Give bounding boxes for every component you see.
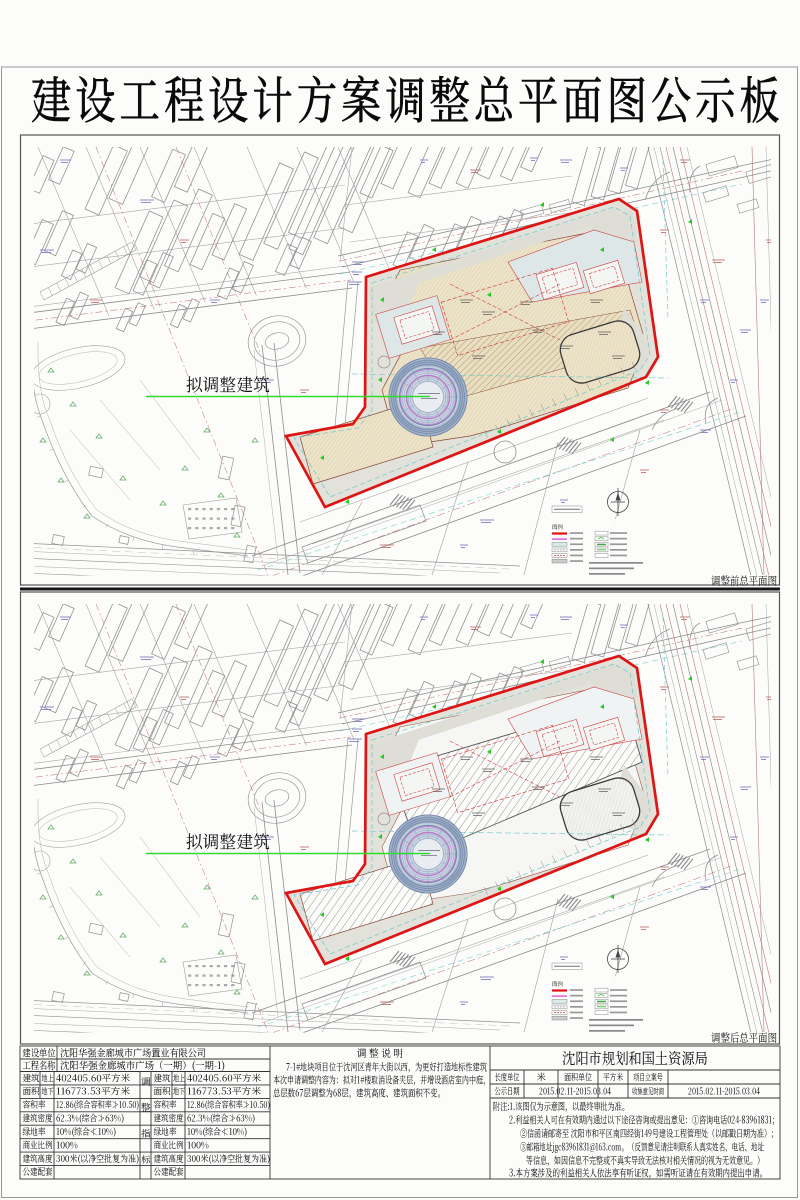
svg-text:地下: 地下 xyxy=(173,1084,185,1097)
svg-text:300米(以净空批复为准): 300米(以净空批复为准) xyxy=(56,1151,139,1165)
svg-text:调整前总平面图: 调整前总平面图 xyxy=(711,573,777,589)
svg-text:整: 整 xyxy=(141,1100,151,1114)
svg-text:2015.02.11-2015.03.04: 2015.02.11-2015.03.04 xyxy=(688,1084,761,1098)
svg-text:调整后总平面图: 调整后总平面图 xyxy=(711,1030,777,1046)
svg-text:10%(综合≮10%): 10%(综合≮10%) xyxy=(56,1124,116,1138)
svg-text:拟调整建筑: 拟调整建筑 xyxy=(186,372,270,397)
svg-text:容积率: 容积率 xyxy=(154,1097,177,1111)
svg-text:116773.53平方米: 116773.53平方米 xyxy=(187,1083,262,1097)
svg-text:62.3%(综合≯63%): 62.3%(综合≯63%) xyxy=(187,1111,255,1125)
svg-text:沈阳市规划和国土资源局: 沈阳市规划和国土资源局 xyxy=(562,1047,708,1069)
svg-text:402405.60平方米: 402405.60平方米 xyxy=(187,1071,262,1085)
svg-text:12.86(综合容积率≯10.50): 12.86(综合容积率≯10.50) xyxy=(187,1097,270,1111)
svg-text:建筑密度: 建筑密度 xyxy=(23,1111,54,1125)
svg-text:地上: 地上 xyxy=(42,1072,54,1085)
svg-text:100%: 100% xyxy=(56,1137,78,1151)
svg-text:10%(综合≮10%): 10%(综合≮10%) xyxy=(187,1124,247,1138)
svg-text:300米(以净空批复为准): 300米(以净空批复为准) xyxy=(187,1151,270,1165)
svg-text:长度单位: 长度单位 xyxy=(495,1070,520,1084)
svg-text:建筑高度: 建筑高度 xyxy=(154,1151,185,1165)
svg-text:建筑: 建筑 xyxy=(23,1071,41,1085)
svg-text:标: 标 xyxy=(141,1152,151,1166)
svg-text:建筑高度: 建筑高度 xyxy=(23,1151,54,1165)
svg-text:商业比例: 商业比例 xyxy=(23,1137,54,1151)
svg-text:拟调整建筑: 拟调整建筑 xyxy=(186,829,270,854)
svg-text:容积率: 容积率 xyxy=(23,1097,46,1111)
svg-text:地下: 地下 xyxy=(42,1084,54,1097)
svg-text:建设工程设计方案调整总平面图公示板: 建设工程设计方案调整总平面图公示板 xyxy=(31,61,780,134)
svg-text:米: 米 xyxy=(536,1070,546,1084)
svg-text:402405.60平方米: 402405.60平方米 xyxy=(56,1071,131,1085)
svg-text:12.86(综合容积率≯10.50): 12.86(综合容积率≯10.50) xyxy=(56,1097,139,1111)
svg-text:平方米: 平方米 xyxy=(603,1070,623,1084)
svg-text:绿地率: 绿地率 xyxy=(23,1124,46,1138)
svg-text:面积: 面积 xyxy=(154,1083,172,1097)
svg-text:3.本方案涉及的利益相关人依法享有听证权，如需听证请在有效期: 3.本方案涉及的利益相关人依法享有听证权，如需听证请在有效期内提出申请。 xyxy=(509,1165,767,1180)
svg-text:建筑: 建筑 xyxy=(154,1071,172,1085)
svg-text:指: 指 xyxy=(141,1126,151,1140)
svg-text:图例: 图例 xyxy=(552,523,564,531)
svg-text:面积: 面积 xyxy=(23,1083,41,1097)
svg-text:收集意见时间: 收集意见时间 xyxy=(632,1086,664,1098)
svg-text:地上: 地上 xyxy=(173,1072,185,1085)
svg-text:公示日期: 公示日期 xyxy=(495,1084,520,1098)
svg-text:绿地率: 绿地率 xyxy=(154,1124,177,1138)
svg-text:商业比例: 商业比例 xyxy=(154,1137,185,1151)
svg-text:面积单位: 面积单位 xyxy=(564,1070,592,1084)
svg-text:建筑密度: 建筑密度 xyxy=(154,1111,185,1125)
svg-text:100%: 100% xyxy=(187,1137,209,1151)
svg-text:总层数67层调整为68层，建筑高度、建筑面积不变。: 总层数67层调整为68层，建筑高度、建筑面积不变。 xyxy=(273,1085,445,1100)
svg-text:公建配套: 公建配套 xyxy=(23,1164,54,1178)
svg-text:调: 调 xyxy=(141,1074,151,1088)
svg-text:62.3%(综合≯63%): 62.3%(综合≯63%) xyxy=(56,1111,124,1125)
svg-text:项目立案号: 项目立案号 xyxy=(633,1071,663,1084)
svg-text:2015.02.11-2015.03.04: 2015.02.11-2015.03.04 xyxy=(539,1084,612,1098)
svg-text:公建配套: 公建配套 xyxy=(154,1164,185,1178)
svg-text:116773.53平方米: 116773.53平方米 xyxy=(56,1083,131,1097)
